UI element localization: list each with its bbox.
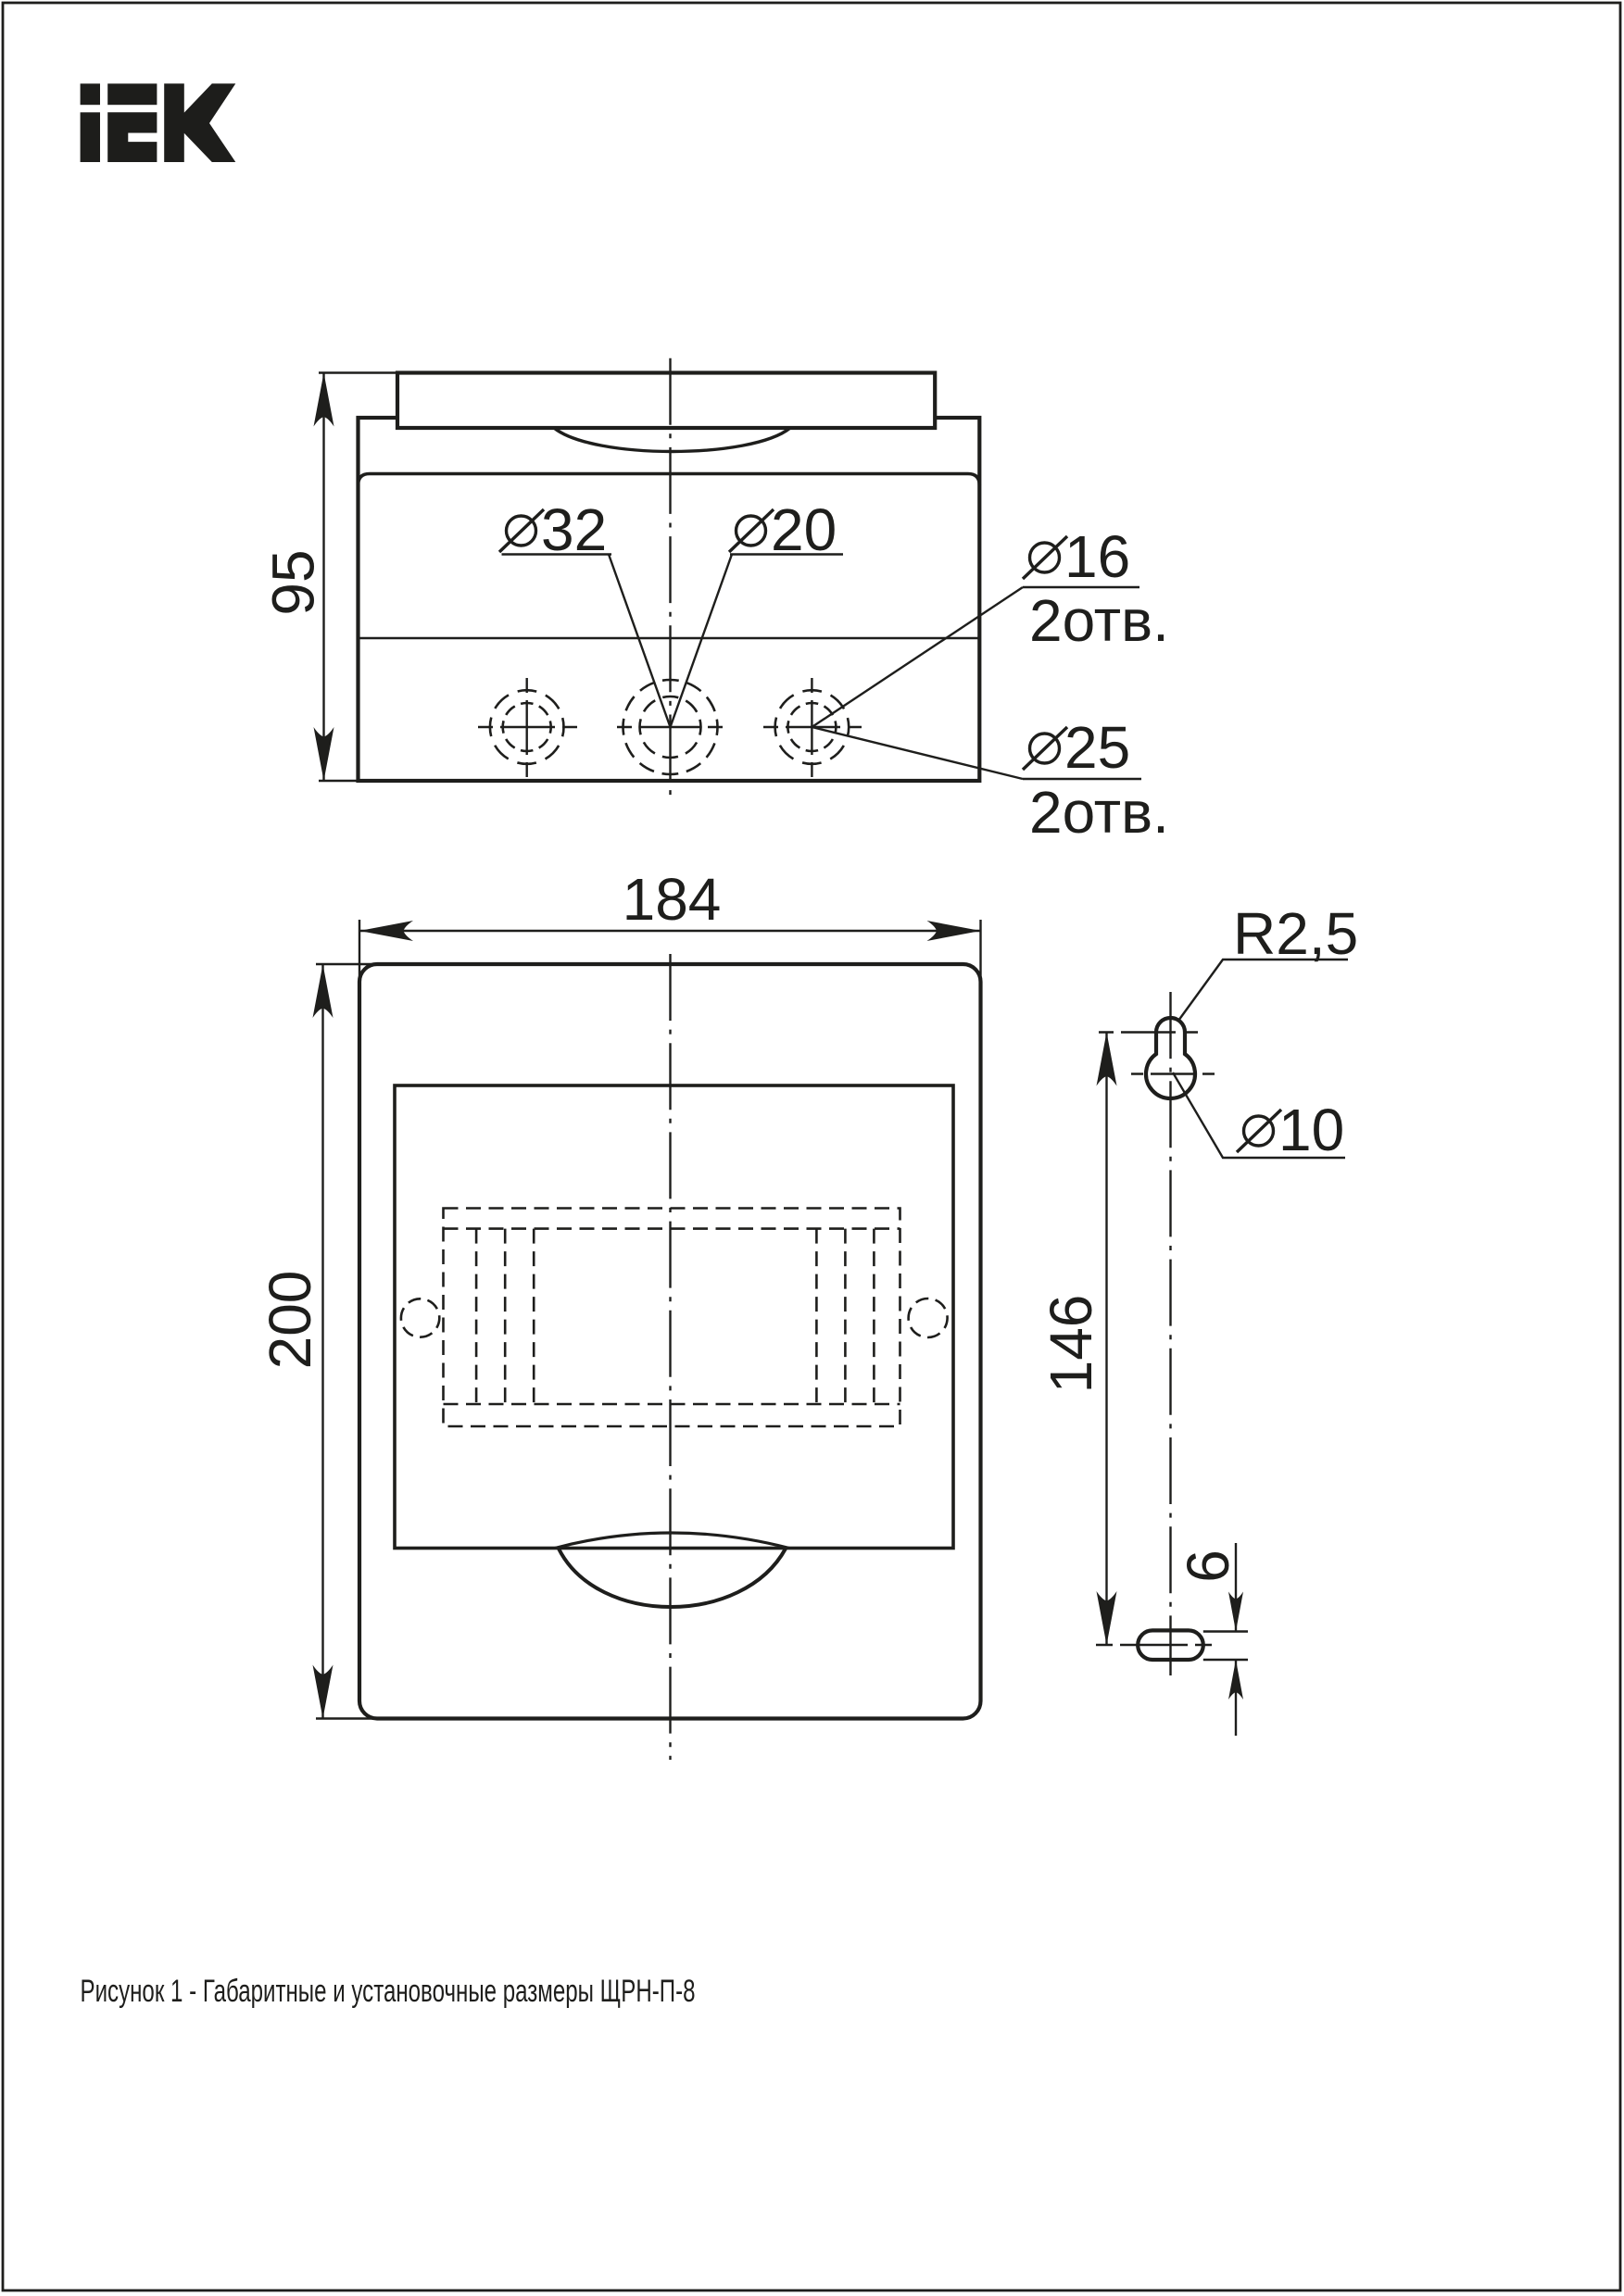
svg-text:146: 146 [1038,1295,1104,1394]
svg-text:20: 20 [771,496,837,563]
svg-text:200: 200 [257,1271,323,1370]
svg-text:2отв.: 2отв. [1029,587,1169,654]
svg-text:184: 184 [623,866,722,933]
svg-text:6: 6 [1175,1549,1241,1583]
svg-text:Рисунок 1 - Габаритные и устан: Рисунок 1 - Габаритные и установочные ра… [81,1974,696,2009]
svg-text:32: 32 [541,496,607,563]
svg-text:10: 10 [1278,1097,1344,1163]
svg-text:2отв.: 2отв. [1029,779,1169,846]
svg-text:25: 25 [1064,714,1130,781]
svg-text:16: 16 [1064,523,1130,590]
svg-text:R2,5: R2,5 [1233,900,1358,967]
svg-text:95: 95 [260,549,327,615]
